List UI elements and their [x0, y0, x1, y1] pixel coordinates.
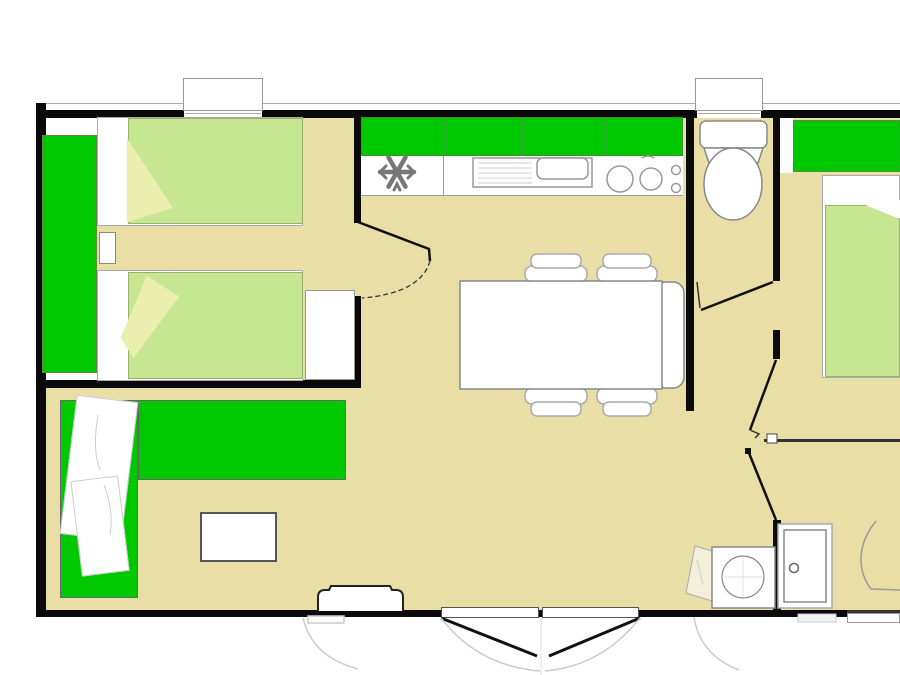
towel	[686, 546, 712, 601]
shower-door-knob	[790, 564, 799, 573]
bedroom1-door-leaf-line	[358, 222, 430, 261]
washbasin-group	[686, 546, 775, 608]
outside-step	[308, 616, 344, 623]
french-door-swing	[441, 618, 640, 675]
dining-chair-top-2	[597, 254, 657, 282]
shower-room-door-leaf	[749, 453, 776, 520]
french-door-arc-right	[545, 618, 640, 671]
burner-knob-2	[672, 184, 681, 193]
outside-swing-arc-left	[303, 618, 358, 669]
blanket-crumple-lines	[95, 415, 111, 535]
shower-cabinet	[778, 521, 900, 622]
toilet-cistern	[700, 121, 767, 148]
bedroom2-wall-cap	[767, 434, 777, 443]
wc-door-jamb	[697, 282, 700, 308]
dining-chair-bottom-2	[597, 388, 657, 416]
bedroom1-door	[358, 222, 430, 298]
wc-door	[697, 282, 773, 310]
shower-door-swing-arc	[861, 521, 900, 590]
chair-back	[603, 254, 651, 268]
outside-swing-arc-bath	[694, 617, 739, 670]
floor-plan-canvas	[0, 0, 900, 675]
bedroom2-door-stop	[750, 430, 759, 438]
french-door-leaf-right	[549, 618, 640, 656]
crumple-line-1	[95, 415, 100, 470]
toilet-bowl	[704, 148, 762, 220]
shower-room-door	[745, 448, 776, 520]
kitchen-sink	[473, 158, 592, 187]
bedroom2-door-leaf	[750, 360, 776, 430]
dining-chair-bottom-1	[525, 388, 587, 416]
burner-large	[607, 166, 633, 192]
shower-outside-step	[798, 614, 836, 622]
wc-door-leaf	[701, 282, 773, 310]
chair-back	[531, 402, 581, 416]
chair-back	[531, 254, 581, 268]
french-door-arc-left	[441, 618, 540, 671]
entry-step	[318, 586, 403, 611]
hob-tick	[642, 156, 654, 158]
dining-chair-top-1	[525, 254, 587, 282]
fixtures-overlay	[0, 0, 900, 675]
shower-room-door-hinge	[745, 448, 751, 454]
burner-knob-1	[672, 166, 681, 175]
outside-door-swings	[303, 616, 739, 670]
hob-burners	[607, 156, 681, 193]
bedroom2-door	[750, 360, 777, 443]
dining-table	[460, 281, 662, 389]
crumple-line-2	[104, 485, 111, 535]
french-door-leaf-left	[441, 618, 537, 656]
fridge-freezer-snowflake-icon	[380, 157, 414, 190]
toilet	[700, 121, 767, 220]
sink-basin	[537, 158, 588, 179]
chair-back	[603, 402, 651, 416]
dining-table-group	[460, 281, 684, 389]
burner-medium	[640, 168, 662, 190]
bedroom1-door-swing-arc	[362, 261, 430, 298]
